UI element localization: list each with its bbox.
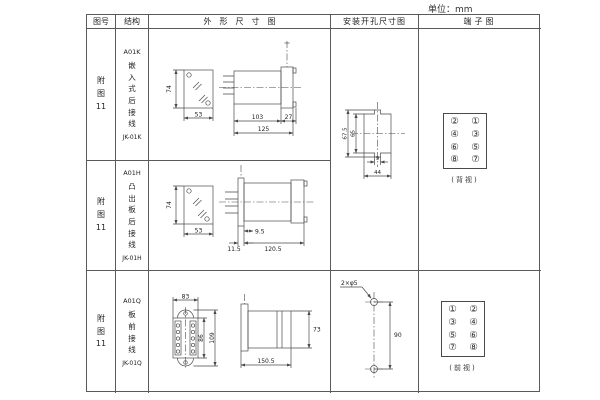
- holes-outline: [340, 287, 393, 373]
- terminal-number: ②: [469, 305, 478, 315]
- terminal-number: ②: [450, 117, 459, 127]
- dim-front-width: 53: [195, 228, 203, 235]
- terminal-number: ⑧: [469, 343, 478, 353]
- outline-cell-row2: 74 53 9.5 11.5 120.5: [149, 161, 331, 271]
- terminal-number: ⑧: [450, 155, 459, 165]
- centerlines: [365, 292, 383, 379]
- front-view: [173, 186, 213, 237]
- terminal-number: ①: [471, 117, 480, 127]
- terminal-diagram-front: ① ② ③ ④ ⑤ ⑥ ⑦ ⑧ (前视): [441, 301, 485, 373]
- figure-no-row3: 附 图 11: [87, 271, 116, 393]
- terminal-number: ④: [450, 130, 459, 140]
- side-view: [241, 304, 312, 368]
- cutout-outline: [345, 110, 391, 179]
- dim-total-length: 125: [258, 126, 270, 133]
- dim-outer-height: 109: [209, 332, 216, 344]
- dim-front-height: 74: [166, 85, 173, 93]
- structure-desc: 嵌入式后接线: [128, 60, 137, 130]
- terminal-number: ①: [448, 305, 457, 315]
- figure-char: 附: [97, 196, 105, 209]
- type-code: JK-01K: [123, 134, 142, 141]
- dim-top-width: 83: [182, 294, 190, 301]
- view-caption: (背视): [451, 175, 478, 185]
- mounting-cutout-diagram: 67.5 65 9 44: [331, 29, 419, 271]
- side-view: [223, 43, 296, 136]
- terminal-number: ③: [471, 130, 480, 140]
- outline-diagram-jk01h: 74 53 9.5 11.5 120.5: [149, 161, 331, 271]
- front-view: [173, 70, 213, 121]
- figure-number: 11: [96, 222, 106, 235]
- terminal-number: ④: [469, 318, 478, 328]
- dim-protrusion: 9.5: [255, 229, 265, 236]
- figure-char: 附: [97, 75, 105, 88]
- terminal-number: ⑤: [471, 143, 480, 153]
- type-code: JK-01H: [122, 255, 141, 262]
- dim-hole-spacing: 90: [394, 332, 402, 339]
- terminal-diagram-rear: ② ① ④ ③ ⑥ ⑤ ⑧ ⑦ (背视): [443, 113, 487, 185]
- figure-number: 11: [96, 101, 106, 114]
- side-view: [225, 178, 307, 246]
- figure-char: 图: [97, 209, 105, 222]
- structure-desc: 凸出板后接线: [128, 181, 137, 251]
- dim-flange-width: 11.5: [227, 246, 241, 253]
- header-outline-dims: 外形尺寸图: [149, 15, 331, 29]
- model-label: A01Q: [123, 297, 141, 305]
- dim-side-height: 73: [313, 327, 321, 334]
- mounting-cell-row3: 2×φ5 90: [331, 271, 419, 393]
- mounting-cell-rows12: 67.5 65 9 44: [331, 29, 419, 271]
- terminal-cell-row3: ① ② ③ ④ ⑤ ⑥ ⑦ ⑧ (前视): [419, 271, 541, 393]
- terminal-number: ③: [448, 318, 457, 328]
- dim-cutout-outer-height: 67.5: [343, 127, 349, 140]
- terminal-number: ⑤: [448, 331, 457, 341]
- dim-holes-label: 2×φ5: [341, 280, 358, 287]
- header-structure: 结构: [116, 15, 149, 29]
- figure-no-row2: 附 图 11: [87, 161, 116, 271]
- dim-notch-width: 9: [376, 156, 380, 162]
- structure-row3: A01Q 板前接线 JK-01Q: [116, 271, 149, 393]
- dim-front-width: 53: [195, 112, 203, 119]
- outline-diagram-jk01k: 74 53 103 27 125: [149, 29, 331, 161]
- figure-number: 11: [96, 338, 106, 351]
- structure-desc: 板前接线: [128, 309, 137, 356]
- terminal-number: ⑦: [448, 343, 457, 353]
- view-caption: (前视): [449, 363, 476, 373]
- header-mounting-dims: 安装开孔尺寸图: [331, 15, 419, 29]
- dim-side-length: 150.5: [257, 358, 274, 365]
- mounting-holes-diagram: 2×φ5 90: [331, 271, 419, 393]
- figure-no-row1: 附 图 11: [87, 29, 116, 161]
- terminal-box: ② ① ④ ③ ⑥ ⑤ ⑧ ⑦: [443, 113, 487, 169]
- dim-front-height: 74: [166, 201, 173, 209]
- dim-cutout-inner-height: 65: [351, 130, 357, 137]
- model-label: A01H: [123, 169, 141, 177]
- document-page: 单位：mm 图号 结构 外形尺寸图 安装开孔尺寸图 端子图 附 图 11 A01…: [0, 0, 600, 400]
- outline-diagram-jk01q: 83 86 109 73 150.5: [149, 271, 331, 393]
- header-terminal-diagram: 端子图: [419, 15, 541, 29]
- front-view: [173, 297, 218, 366]
- figure-char: 图: [97, 326, 105, 339]
- terminal-cell-rows12: ② ① ④ ③ ⑥ ⑤ ⑧ ⑦ (背视): [419, 29, 541, 271]
- dim-inner-height: 86: [198, 334, 205, 342]
- terminal-number: ⑦: [471, 155, 480, 165]
- dim-cutout-width: 44: [374, 170, 381, 176]
- model-label: A01K: [124, 48, 141, 56]
- type-code: JK-01Q: [122, 360, 142, 367]
- terminal-number: ⑥: [469, 331, 478, 341]
- outline-cell-row1: 74 53 103 27 125: [149, 29, 331, 161]
- structure-row1: A01K 嵌入式后接线 JK-01K: [116, 29, 149, 161]
- header-figure-no: 图号: [87, 15, 116, 29]
- terminal-number: ⑥: [450, 143, 459, 153]
- figure-char: 附: [97, 313, 105, 326]
- structure-row2: A01H 凸出板后接线 JK-01H: [116, 161, 149, 271]
- dimension-table: 图号 结构 外形尺寸图 安装开孔尺寸图 端子图 附 图 11 A01K 嵌入式后…: [86, 14, 540, 392]
- terminal-box: ① ② ③ ④ ⑤ ⑥ ⑦ ⑧: [441, 301, 485, 357]
- figure-char: 图: [97, 88, 105, 101]
- dim-body-length: 103: [252, 114, 264, 121]
- outline-cell-row3: 83 86 109 73 150.5: [149, 271, 331, 393]
- dim-flange-depth: 27: [285, 114, 293, 121]
- dim-total-length: 120.5: [264, 246, 281, 253]
